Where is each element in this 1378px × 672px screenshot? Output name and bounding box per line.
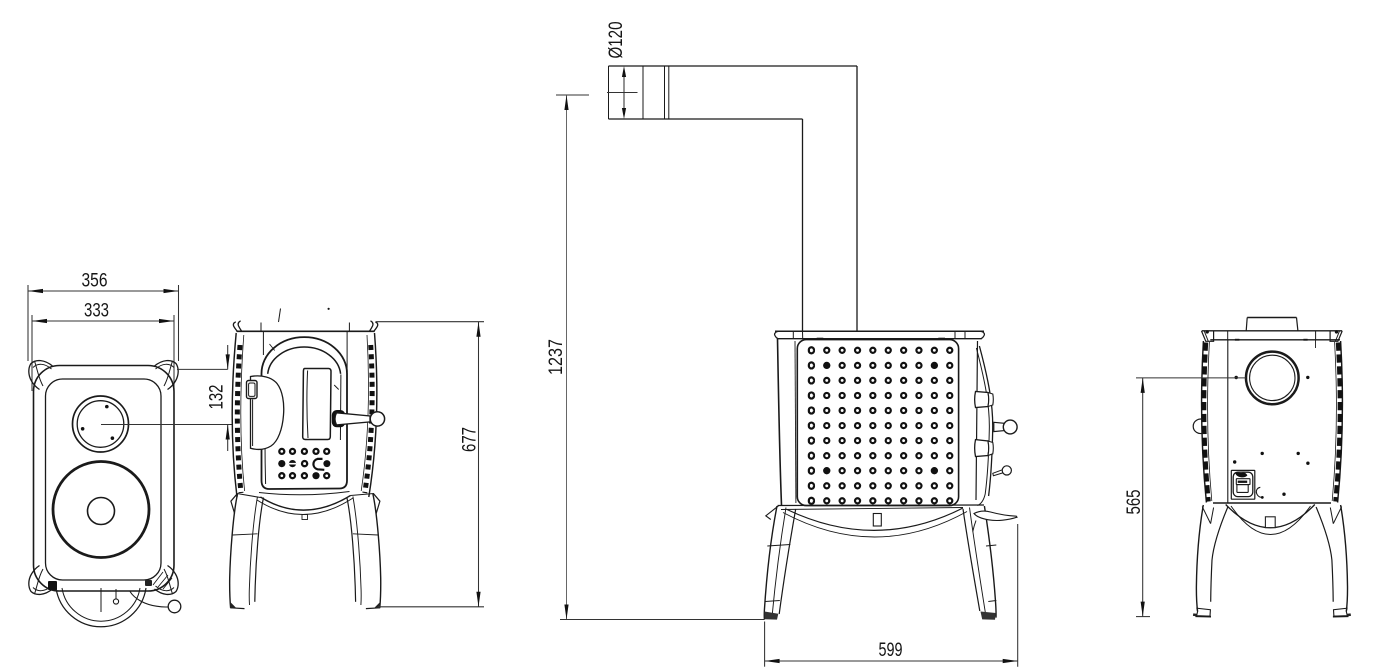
svg-text:Ø120: Ø120 <box>606 22 627 59</box>
svg-text:333: 333 <box>84 301 109 322</box>
svg-text:565: 565 <box>1124 490 1145 515</box>
svg-text:677: 677 <box>460 427 481 452</box>
svg-text:1237: 1237 <box>546 339 567 375</box>
svg-text:132: 132 <box>207 385 228 410</box>
svg-text:356: 356 <box>82 271 108 292</box>
svg-text:599: 599 <box>879 640 903 661</box>
